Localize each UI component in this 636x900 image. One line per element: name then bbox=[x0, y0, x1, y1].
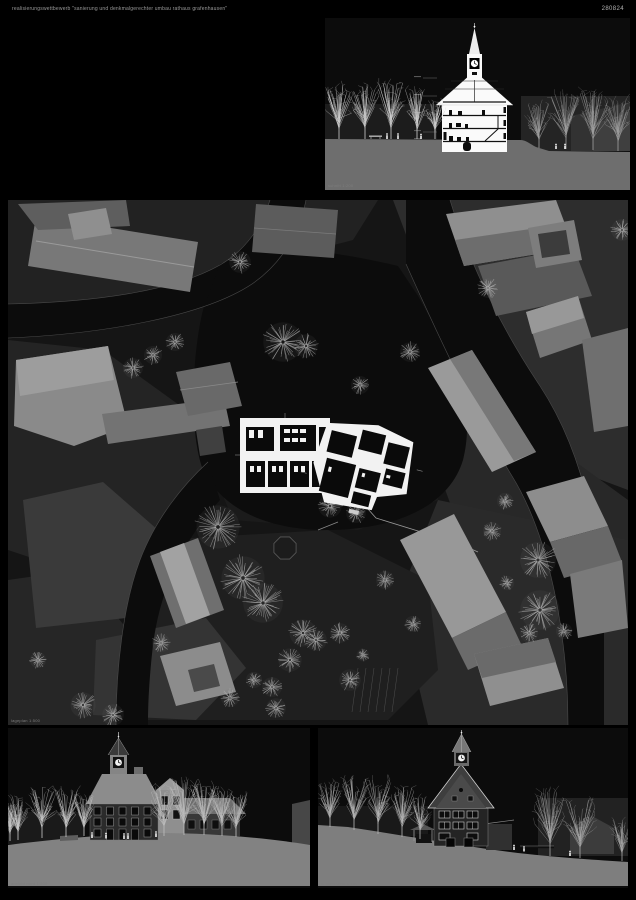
panel-section: schnitt 1:200 bbox=[325, 18, 630, 190]
entry-number: 280824 bbox=[602, 6, 624, 12]
competition-board: { "header": { "title": "realisierungswet… bbox=[0, 0, 636, 900]
board-header: realisierungswettbewerb "sanierung und d… bbox=[0, 0, 636, 18]
tree-plan bbox=[246, 672, 262, 688]
tree-plan bbox=[166, 333, 184, 351]
section-drawing bbox=[325, 18, 630, 190]
elevation-west-drawing bbox=[318, 728, 628, 888]
site-plan-drawing bbox=[8, 200, 628, 725]
panel-elevation-south: ansicht nord 1:200 bbox=[8, 728, 310, 888]
board-title: realisierungswettbewerb "sanierung und d… bbox=[12, 6, 227, 12]
tree-plan bbox=[556, 623, 572, 639]
tree-plan bbox=[144, 346, 162, 365]
panel-site-plan: lageplan 1:500 bbox=[8, 200, 628, 725]
panel-elevation-west: ansicht west 1:200 bbox=[318, 728, 628, 888]
elevation-south-drawing bbox=[8, 728, 310, 888]
tree-plan bbox=[339, 669, 361, 691]
